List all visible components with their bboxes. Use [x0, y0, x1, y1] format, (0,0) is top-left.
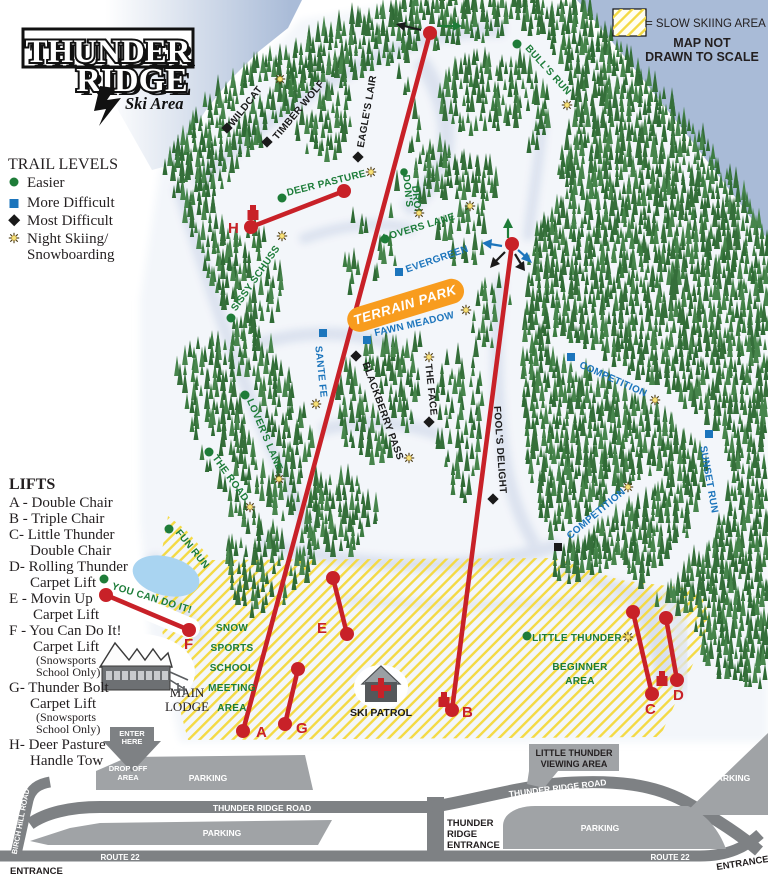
svg-text:LITTLE THUNDER: LITTLE THUNDER [536, 748, 613, 758]
svg-text:G- Thunder Bolt: G- Thunder Bolt [9, 680, 110, 696]
svg-text:LODGE: LODGE [165, 699, 209, 714]
svg-text:F: F [184, 636, 193, 653]
svg-text:THUNDER RIDGE ROAD: THUNDER RIDGE ROAD [213, 803, 311, 813]
svg-text:E - Movin Up: E - Movin Up [9, 591, 93, 607]
svg-text:ENTRANCE: ENTRANCE [10, 866, 63, 877]
svg-text:Handle Tow: Handle Tow [30, 753, 103, 769]
svg-text:BEGINNER: BEGINNER [552, 662, 608, 673]
svg-text:LIFTS: LIFTS [9, 476, 55, 493]
svg-text:School Only): School Only) [36, 665, 100, 679]
svg-text:HERE: HERE [122, 737, 143, 746]
svg-text:H: H [228, 220, 239, 237]
svg-text:Snowboarding: Snowboarding [27, 247, 115, 263]
svg-text:Carpet Lift: Carpet Lift [33, 607, 100, 623]
svg-text:Ski Area: Ski Area [125, 94, 184, 113]
svg-text:ROUTE 22: ROUTE 22 [650, 853, 690, 862]
svg-text:F - You Can Do It!: F - You Can Do It! [9, 623, 122, 639]
svg-text:LITTLE THUNDER: LITTLE THUNDER [532, 633, 622, 644]
svg-text:ROUTE 22: ROUTE 22 [100, 853, 140, 862]
svg-text:Double Chair: Double Chair [30, 543, 111, 559]
svg-text:TRAIL LEVELS: TRAIL LEVELS [8, 156, 118, 173]
svg-text:PARKING: PARKING [203, 828, 242, 838]
svg-text:SKI PATROL: SKI PATROL [350, 707, 413, 719]
svg-text:D- Rolling Thunder: D- Rolling Thunder [9, 559, 128, 575]
svg-text:C: C [645, 701, 656, 718]
svg-text:B: B [462, 704, 473, 721]
svg-text:D: D [673, 687, 684, 704]
svg-text:DROP OFF: DROP OFF [109, 764, 148, 773]
svg-text:MAIN: MAIN [170, 685, 205, 700]
svg-text:H- Deer Pasture: H- Deer Pasture [9, 737, 106, 753]
svg-text:PARKING: PARKING [712, 773, 751, 783]
svg-text:VIEWING AREA: VIEWING AREA [541, 759, 608, 769]
svg-text:SCHOOL: SCHOOL [210, 663, 255, 674]
svg-text:C- Little Thunder: C- Little Thunder [9, 527, 115, 543]
svg-text:B - Triple Chair: B - Triple Chair [9, 511, 104, 527]
svg-text:G: G [296, 720, 308, 737]
svg-text:= SLOW SKIING AREA: = SLOW SKIING AREA [646, 18, 766, 30]
svg-text:E: E [317, 620, 327, 637]
svg-text:SNOW: SNOW [216, 623, 249, 634]
svg-text:MEETING: MEETING [208, 683, 256, 694]
svg-text:SPORTS: SPORTS [211, 643, 254, 654]
svg-text:More Difficult: More Difficult [27, 195, 115, 211]
svg-text:RIDGE: RIDGE [447, 829, 477, 840]
svg-text:PARKING: PARKING [581, 823, 620, 833]
svg-text:Easier: Easier [27, 175, 64, 191]
svg-text:Carpet Lift: Carpet Lift [30, 575, 97, 591]
svg-text:Most Difficult: Most Difficult [27, 213, 114, 229]
svg-text:MAP NOT: MAP NOT [673, 36, 731, 50]
svg-text:THUNDER: THUNDER [447, 818, 494, 829]
svg-text:AREA: AREA [117, 773, 139, 782]
svg-text:AREA: AREA [565, 676, 595, 687]
svg-text:AREA: AREA [217, 703, 247, 714]
svg-text:School Only): School Only) [36, 722, 100, 736]
svg-text:ENTRANCE: ENTRANCE [447, 840, 500, 851]
svg-text:A - Double Chair: A - Double Chair [9, 495, 113, 511]
svg-text:DRAWN TO SCALE: DRAWN TO SCALE [645, 50, 759, 64]
svg-text:Night Skiing/: Night Skiing/ [27, 231, 109, 247]
svg-text:PARKING: PARKING [189, 773, 228, 783]
svg-text:A: A [256, 724, 267, 741]
